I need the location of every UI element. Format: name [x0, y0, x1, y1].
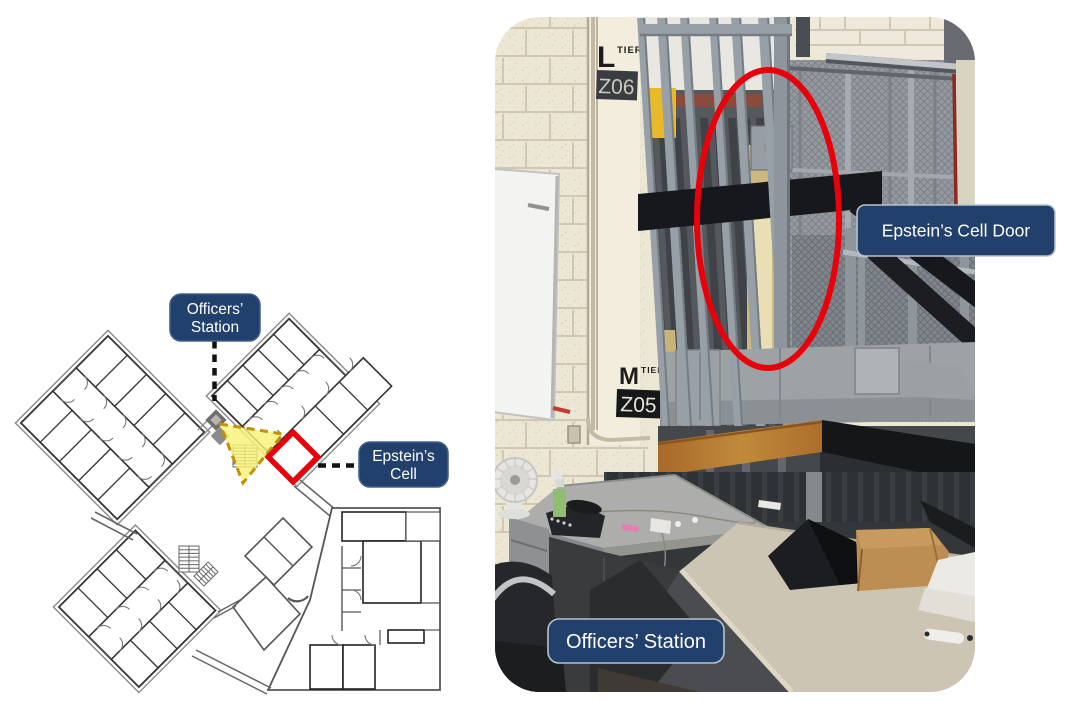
- svg-text:Cell: Cell: [390, 466, 417, 483]
- svg-text:Station: Station: [191, 319, 239, 336]
- svg-text:Officers’: Officers’: [187, 301, 244, 318]
- svg-text:TIER: TIER: [617, 45, 643, 56]
- svg-text:Epstein’s Cell Door: Epstein’s Cell Door: [882, 221, 1031, 241]
- svg-text:Epstein’s: Epstein’s: [372, 448, 435, 465]
- svg-text:M: M: [619, 363, 639, 390]
- svg-text:L: L: [597, 41, 615, 74]
- svg-text:Z05: Z05: [620, 393, 657, 417]
- svg-text:Z06: Z06: [598, 75, 635, 99]
- svg-text:Officers’ Station: Officers’ Station: [566, 631, 706, 653]
